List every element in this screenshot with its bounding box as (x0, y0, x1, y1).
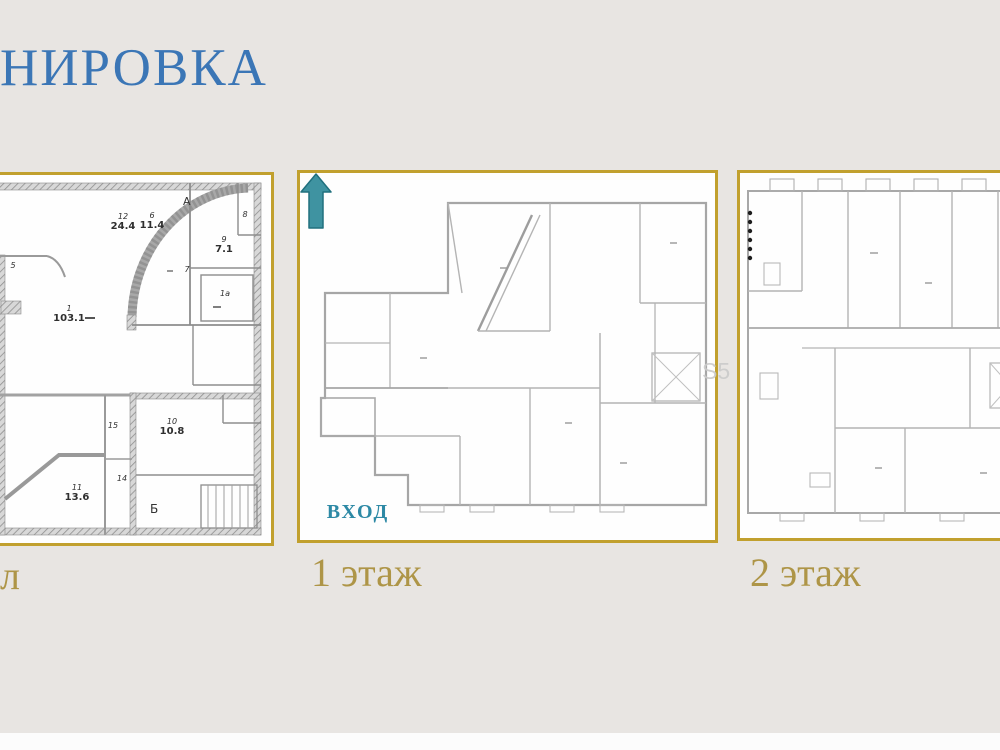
floor1-floor-plan-drawing (300, 173, 715, 540)
room-number: 10 (149, 417, 195, 426)
room-number: 8 (235, 210, 255, 219)
caption-basement: л (0, 556, 20, 596)
room-number: 1а (215, 289, 235, 298)
room-label: 6 11.4 (129, 211, 175, 231)
room-area: 11.4 (129, 220, 175, 231)
room-label: 11 13.6 (54, 483, 100, 503)
bottom-strip (0, 733, 1000, 750)
entrance-label: ВХОД (312, 501, 404, 524)
entrance-arrow-icon (300, 173, 332, 229)
room-number: 7 (177, 265, 197, 274)
room-number: 14 (112, 474, 132, 483)
floor-plan-panel-floor1: ВХОД (297, 170, 718, 543)
axis-label-b: Б (150, 502, 158, 516)
floor-plan-panel-floor2 (737, 170, 1000, 541)
room-label: 9 7.1 (201, 235, 247, 255)
floor2-floor-plan-drawing (740, 173, 1000, 538)
room-number: 1 (46, 304, 92, 313)
room-label: 5 (3, 261, 23, 270)
watermark: S5 (702, 358, 730, 385)
room-area: 10.8 (149, 426, 195, 437)
room-area: 7.1 (201, 244, 247, 255)
room-number: 6 (129, 211, 175, 220)
page-title: НИРОВКА (0, 42, 268, 95)
room-label: 8 (235, 210, 255, 219)
room-number: 11 (54, 483, 100, 492)
room-label: 1 103.1 (46, 304, 92, 324)
room-number: 5 (3, 261, 23, 270)
floor-plan-panel-basement: 12 24.4 6 11.4 9 7.1 1 103.1 5 7 8 1а 15… (0, 172, 274, 546)
room-label: 15 (103, 421, 123, 430)
caption-floor2: 2 этаж (750, 553, 861, 593)
room-label: 14 (112, 474, 132, 483)
room-area: 13.6 (54, 492, 100, 503)
room-area: 103.1 (46, 313, 92, 324)
room-label: 1а (215, 289, 235, 298)
room-label: 7 (177, 265, 197, 274)
room-number: 9 (201, 235, 247, 244)
room-number: 15 (103, 421, 123, 430)
caption-floor1: 1 этаж (311, 553, 422, 593)
axis-label-a: А (183, 195, 191, 208)
room-label: 10 10.8 (149, 417, 195, 437)
